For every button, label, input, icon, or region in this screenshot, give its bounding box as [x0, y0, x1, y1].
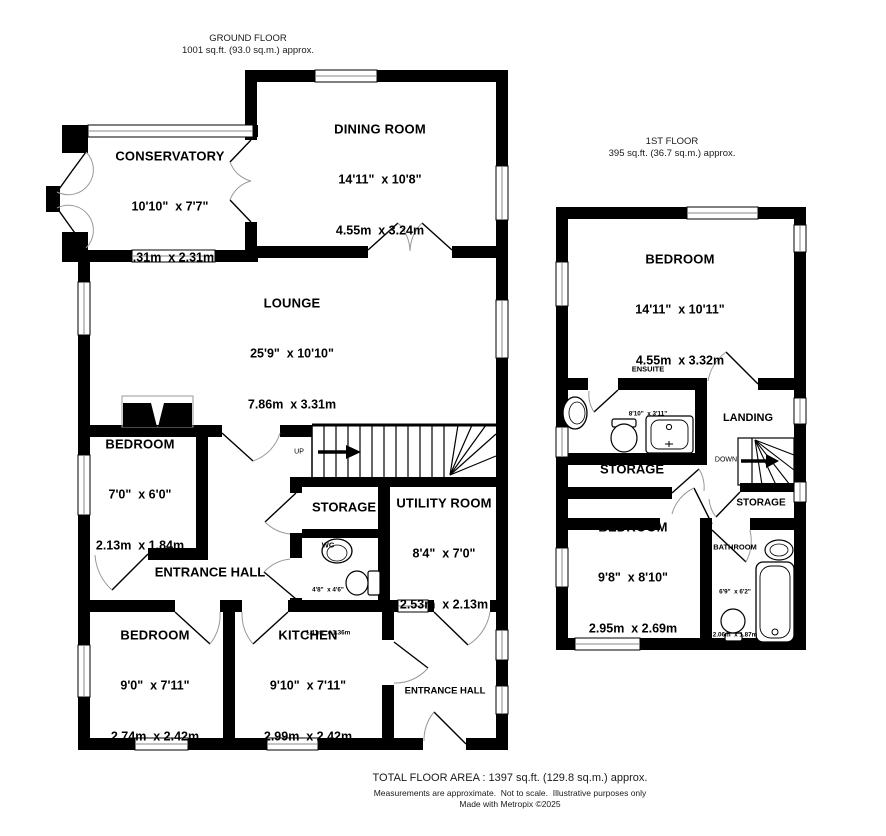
room-label-landing: LANDING [723, 412, 773, 424]
room-label-bathroom: BATHROOM 6'9" x 6'2" 2.06m x 1.87m [713, 507, 757, 657]
footer-credit: Made with Metropix ©2025 [459, 799, 560, 809]
stairs-down-label: DOWN [715, 457, 737, 464]
footer-total: TOTAL FLOOR AREA : 1397 sq.ft. (129.8 sq… [373, 772, 648, 784]
room-label-bedroom-rear: BEDROOM 9'8" x 8'10" 2.95m x 2.69m [589, 484, 677, 655]
footer-disclaimer: Measurements are approximate. Not to sca… [374, 788, 647, 798]
first-floor-area: 395 sq.ft. (36.7 sq.m.) approx. [609, 148, 736, 160]
first-floor-header: 1ST FLOOR 395 sq.ft. (36.7 sq.m.) approx… [609, 136, 736, 159]
first-floor-title: 1ST FLOOR [609, 136, 736, 148]
ground-floor-header: GROUND FLOOR 1001 sq.ft. (93.0 sq.m.) ap… [182, 33, 314, 56]
room-label-bedroom-left: BEDROOM 9'0" x 7'11" 2.74m x 2.42m [111, 592, 199, 763]
room-label-conservatory: CONSERVATORY 10'10" x 7'7" 3.31m x 2.31m [115, 113, 224, 284]
room-label-bedroom-small: BEDROOM 7'0" x 6'0" 2.13m x 1.84m [96, 401, 184, 572]
first-stairs [738, 438, 794, 485]
room-label-dining-room: DINING ROOM 14'11" x 10'8" 4.55m x 3.24m [334, 86, 426, 257]
floorplan-page: GROUND FLOOR 1001 sq.ft. (93.0 sq.m.) ap… [0, 0, 886, 836]
room-label-entrance-hall-2: ENTRANCE HALL [405, 686, 486, 697]
room-label-entrance-hall: ENTRANCE HALL [155, 565, 266, 580]
room-label-utility-room: UTILITY ROOM 8'4" x 7'0" 2.53m x 2.13m [396, 460, 491, 631]
room-label-storage-first-left: STORAGE [600, 462, 664, 477]
room-label-lounge: LOUNGE 25'9" x 10'10" 7.86m x 3.31m [248, 260, 336, 431]
stairs-up-label: UP [294, 449, 304, 456]
ground-floor-title: GROUND FLOOR [182, 33, 314, 45]
ground-floor-area: 1001 sq.ft. (93.0 sq.m.) approx. [182, 45, 314, 57]
wc-toilet-icon [368, 571, 380, 595]
room-label-kitchen: KITCHEN 9'10" x 7'11" 2.99m x 2.42m [264, 592, 352, 763]
room-label-ensuite: ENSUITE 8'10" x 3'11" 2.69m x 1.20m [626, 329, 670, 479]
